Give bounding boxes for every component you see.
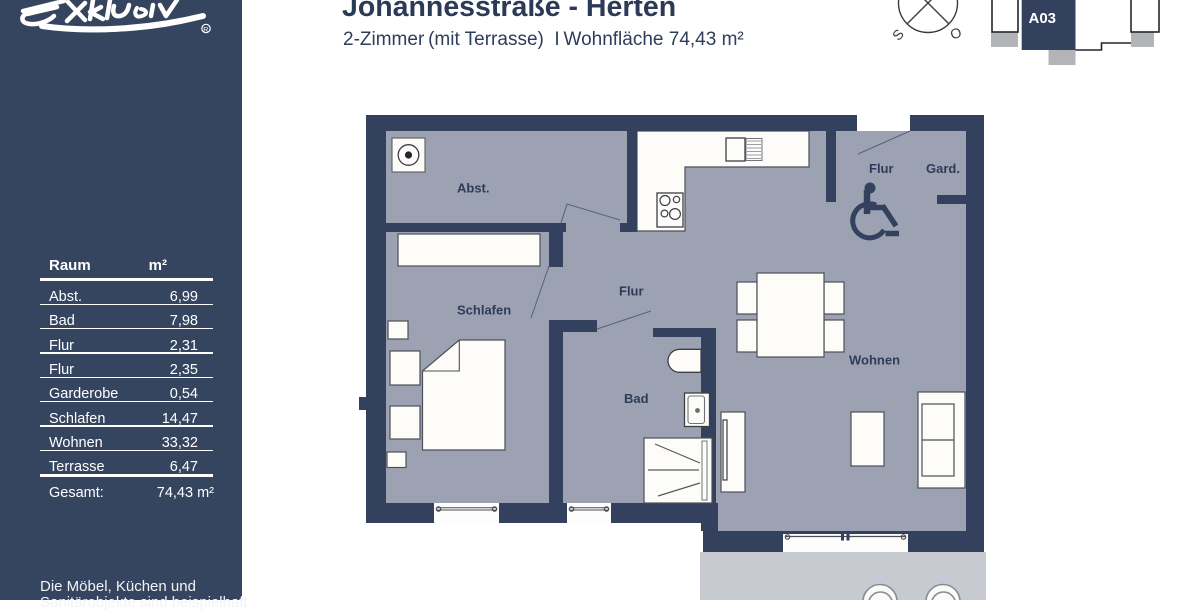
svg-text:Bad: Bad [624,391,649,406]
svg-text:Gard.: Gard. [926,161,960,176]
svg-text:Flur: Flur [869,161,894,176]
svg-text:Schlafen: Schlafen [457,303,511,318]
svg-text:Abst.: Abst. [457,181,490,196]
svg-text:Flur: Flur [619,284,644,299]
svg-text:Wohnen: Wohnen [849,353,900,368]
